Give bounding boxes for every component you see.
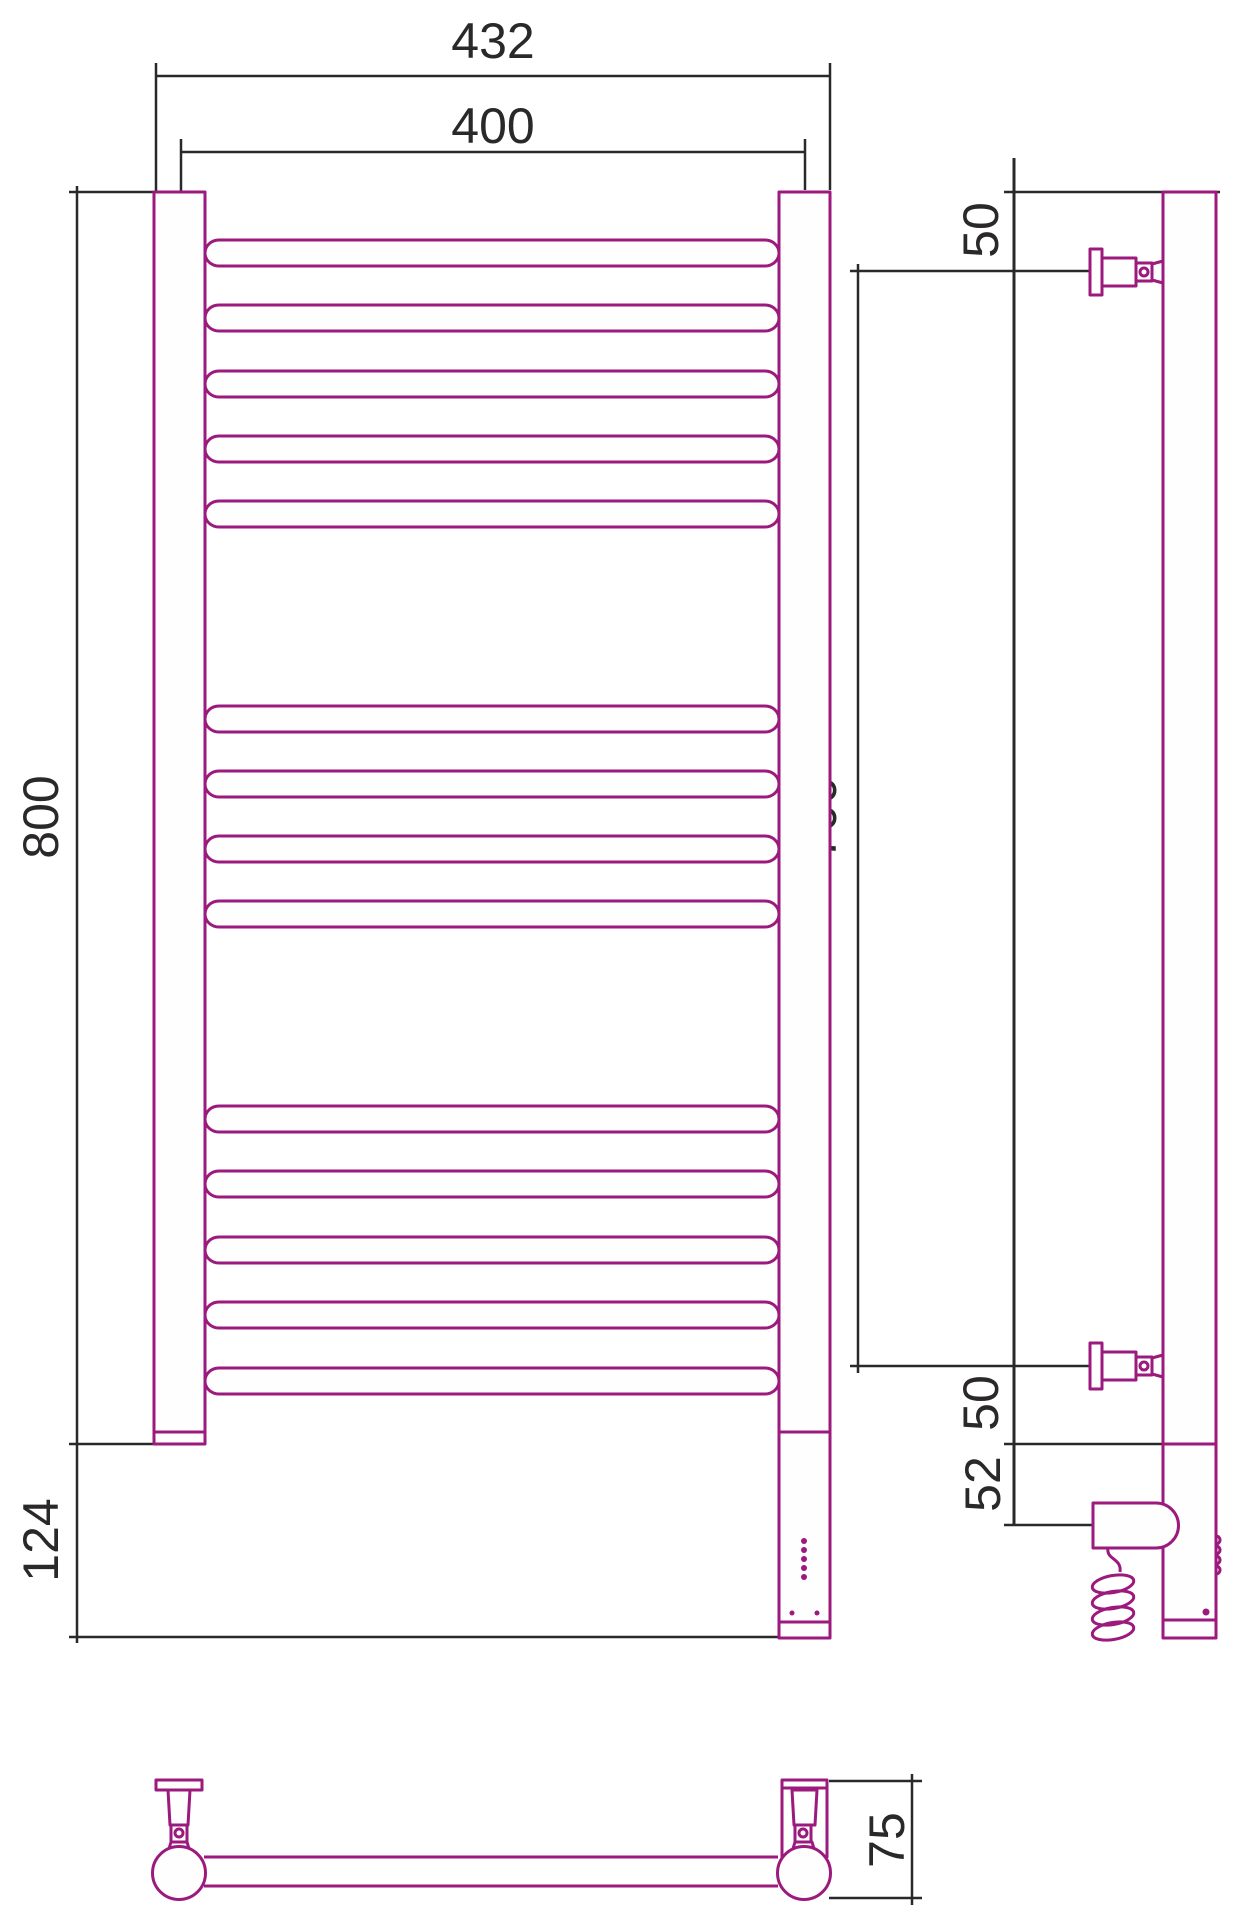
towel-rail xyxy=(205,1237,779,1263)
dim-depth-label: 75 xyxy=(859,1812,915,1868)
bottom-right-pipe-section xyxy=(778,1847,831,1900)
side-view xyxy=(1090,192,1220,1643)
dim-overall-height-label: 800 xyxy=(13,775,69,858)
towel-rail xyxy=(205,771,779,797)
bottom-right-bracket xyxy=(778,1780,831,1900)
towel-rail xyxy=(205,240,779,266)
towel-rail xyxy=(205,1106,779,1132)
side-heater-bottom-cap xyxy=(1163,1620,1216,1638)
dim-side-top-offset-label: 50 xyxy=(953,202,1009,258)
towel-rail xyxy=(205,1302,779,1328)
dimension-layer xyxy=(69,63,1220,1905)
power-cable-spiral xyxy=(1091,1548,1135,1643)
side-pipe xyxy=(1163,192,1216,1638)
front-view xyxy=(154,192,830,1638)
dim-side-bottom-offset-label: 50 xyxy=(953,1375,1009,1431)
lower-wall-bracket xyxy=(1090,1343,1163,1389)
towel-rail xyxy=(205,436,779,462)
dim-overall-width-label: 432 xyxy=(451,13,534,69)
heater-bottom-cap xyxy=(779,1622,830,1638)
upper-wall-bracket xyxy=(1090,249,1163,295)
right-post xyxy=(779,192,830,1638)
towel-rail xyxy=(205,836,779,862)
towel-rail xyxy=(205,901,779,927)
dim-heater-box-height-label: 124 xyxy=(13,1498,69,1581)
bottom-rail xyxy=(204,1857,778,1886)
dim-rail-span-label: 400 xyxy=(451,98,534,154)
towel-rail xyxy=(205,1171,779,1197)
towel-rail xyxy=(205,305,779,331)
towel-rail xyxy=(205,371,779,397)
towel-rail xyxy=(205,501,779,527)
side-screw-dot xyxy=(1203,1609,1210,1616)
rail-group xyxy=(205,240,779,1394)
product-layer xyxy=(153,192,1221,1900)
bottom-left-bracket xyxy=(153,1780,206,1900)
bottom-left-pipe-section xyxy=(153,1847,206,1900)
towel-rail xyxy=(205,706,779,732)
towel-rail xyxy=(205,1368,779,1394)
drawing-sheet: 432 400 800 124 50 700 50 52 75 xyxy=(0,0,1234,1920)
dim-side-heater-offset-label: 52 xyxy=(955,1456,1011,1512)
thermostat-housing xyxy=(1093,1503,1179,1548)
left-post xyxy=(154,192,205,1444)
bottom-view xyxy=(153,1780,831,1900)
